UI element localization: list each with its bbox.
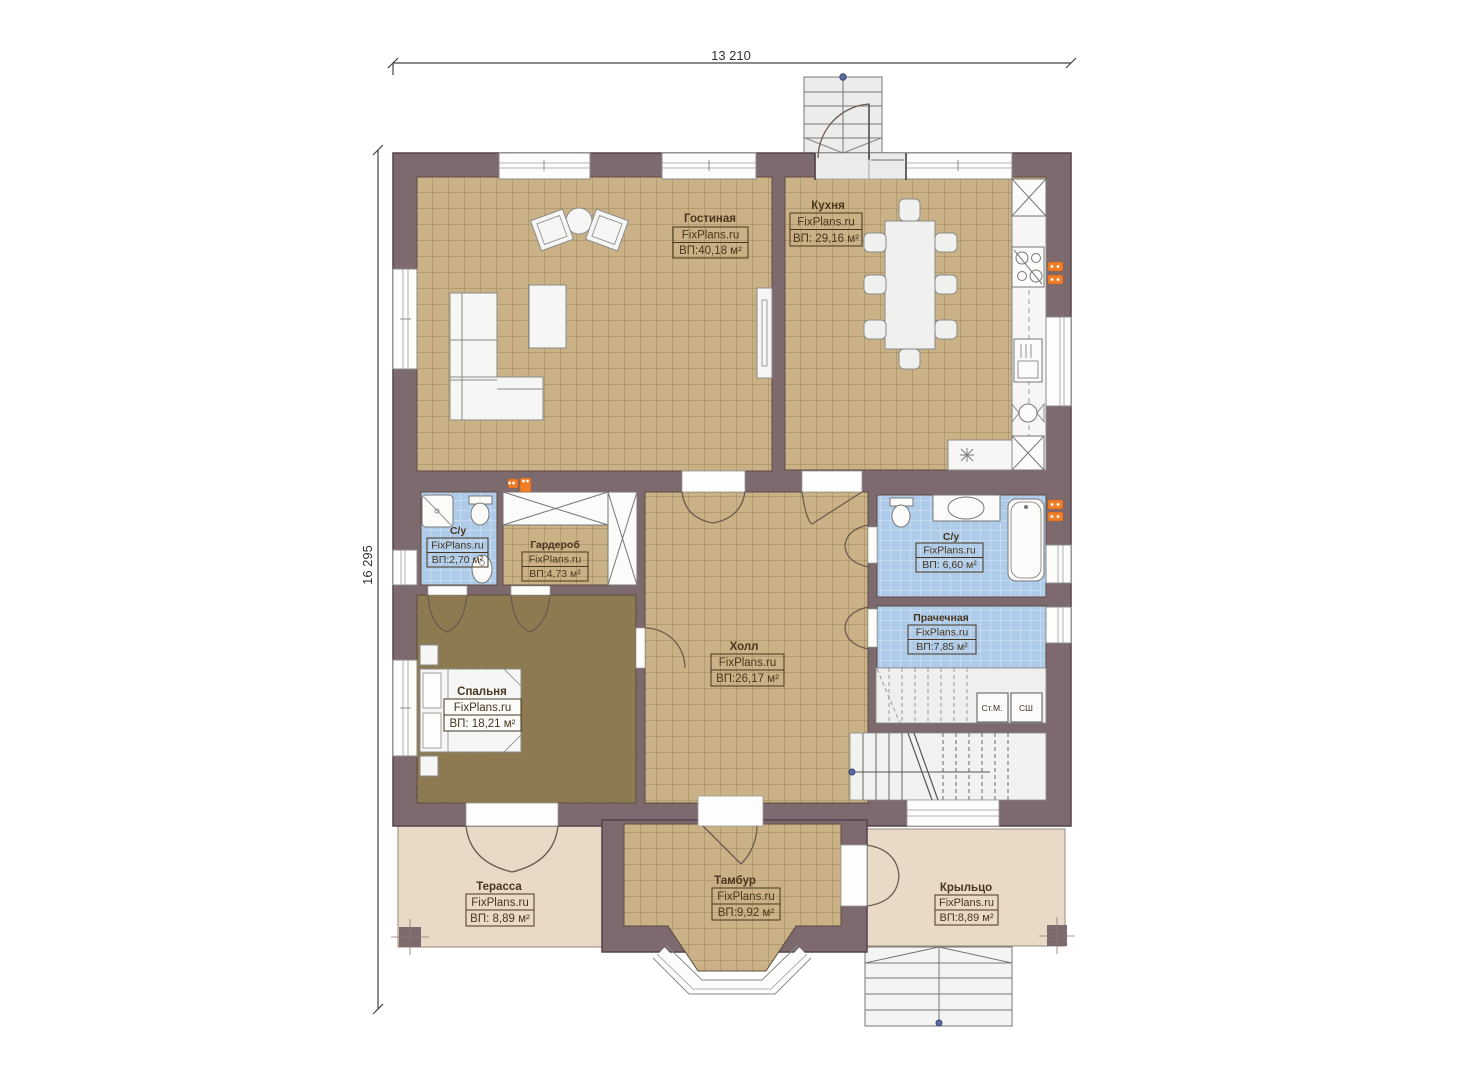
svg-text:FixPlans.ru: FixPlans.ru [916, 627, 969, 639]
svg-text:FixPlans.ru: FixPlans.ru [923, 545, 976, 557]
svg-text:FixPlans.ru: FixPlans.ru [471, 897, 529, 909]
svg-text:FixPlans.ru: FixPlans.ru [529, 554, 582, 566]
svg-text:ВП:4,73 м²: ВП:4,73 м² [529, 568, 581, 580]
svg-text:ВП: 6,60 м²: ВП: 6,60 м² [922, 559, 977, 571]
svg-text:FixPlans.ru: FixPlans.ru [939, 897, 994, 909]
svg-text:FixPlans.ru: FixPlans.ru [797, 217, 855, 229]
svg-text:С/у: С/у [450, 525, 467, 537]
svg-text:FixPlans.ru: FixPlans.ru [719, 657, 777, 669]
svg-text:ВП: 18,21 м²: ВП: 18,21 м² [449, 718, 515, 730]
svg-text:ВП: 8,89 м²: ВП: 8,89 м² [470, 913, 530, 925]
svg-text:Спальня: Спальня [457, 686, 507, 698]
svg-text:ВП:7,85 м²: ВП:7,85 м² [916, 641, 968, 653]
svg-text:Крыльцо: Крыльцо [940, 882, 992, 894]
svg-text:Холл: Холл [730, 641, 759, 653]
svg-text:Прачечная: Прачечная [913, 612, 969, 624]
svg-text:ВП: 29,16 м²: ВП: 29,16 м² [793, 233, 859, 245]
svg-text:Гостиная: Гостиная [684, 213, 736, 225]
svg-text:ВП:2,70 м²: ВП:2,70 м² [432, 554, 484, 566]
svg-text:Терасса: Терасса [476, 881, 522, 893]
svg-text:ВП:9,92 м²: ВП:9,92 м² [718, 907, 775, 919]
svg-text:FixPlans.ru: FixPlans.ru [431, 540, 484, 552]
svg-text:Гардероб: Гардероб [530, 539, 580, 551]
svg-text:Тамбур: Тамбур [714, 875, 756, 887]
svg-text:ВП:40,18 м²: ВП:40,18 м² [679, 245, 742, 257]
svg-text:FixPlans.ru: FixPlans.ru [682, 230, 740, 242]
svg-text:FixPlans.ru: FixPlans.ru [717, 891, 775, 903]
svg-text:Ст.М.: Ст.М. [982, 703, 1003, 713]
svg-text:FixPlans.ru: FixPlans.ru [454, 702, 512, 714]
svg-text:С/у: С/у [943, 531, 960, 543]
svg-text:ВП:26,17 м²: ВП:26,17 м² [716, 673, 779, 685]
svg-text:Кухня: Кухня [811, 200, 845, 212]
svg-text:ВП:8,89 м²: ВП:8,89 м² [940, 912, 994, 924]
svg-text:16 295: 16 295 [360, 545, 375, 585]
svg-text:13 210: 13 210 [711, 48, 751, 63]
svg-text:СШ: СШ [1019, 703, 1033, 713]
